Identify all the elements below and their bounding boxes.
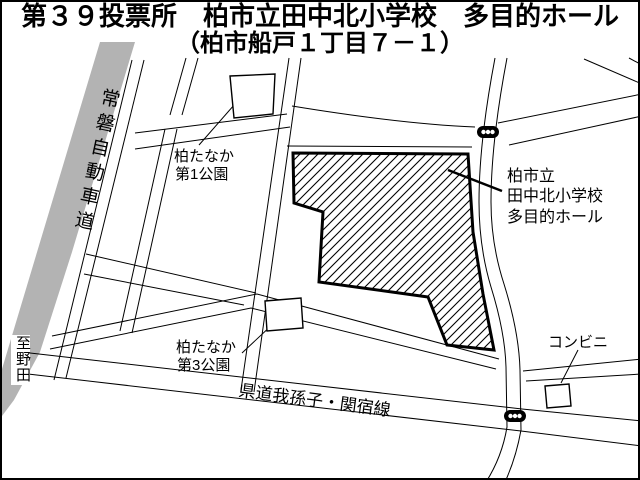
park3-building [265,298,303,331]
school-hall-label: 田中北小学校 [507,187,603,205]
prefectural-road-label: 県道我孫子・関宿線 [237,381,391,420]
park1-building [230,74,275,118]
page-title: 第３９投票所 柏市立田中北小学校 多目的ホール [2,3,638,30]
park3-label: 第3公園 [177,356,230,374]
school-hall-label: 柏市立 [507,167,555,185]
traffic-signal-icon [504,410,526,422]
park3-label: 柏たなか [176,339,236,356]
to-noda-label: 至野田 [11,335,30,385]
school-hall-label: 多目的ホール [507,208,603,226]
school-site-polygon [293,153,494,350]
park1-label: 第1公園 [175,165,228,183]
convenience-store-building [545,384,571,408]
convenience-store-label: コンビニ [548,334,608,351]
map-canvas: 柏たなか 第1公園 柏たなか 第3公園 柏市立 田中北小学校 多目的ホール 県道… [2,2,640,480]
traffic-signal-icon [477,126,499,138]
page-subtitle: （柏市船戸１丁目７－１） [2,31,638,56]
polling-station-map-page: 柏たなか 第1公園 柏たなか 第3公園 柏市立 田中北小学校 多目的ホール 県道… [0,0,640,480]
park1-label: 柏たなか [174,148,234,165]
